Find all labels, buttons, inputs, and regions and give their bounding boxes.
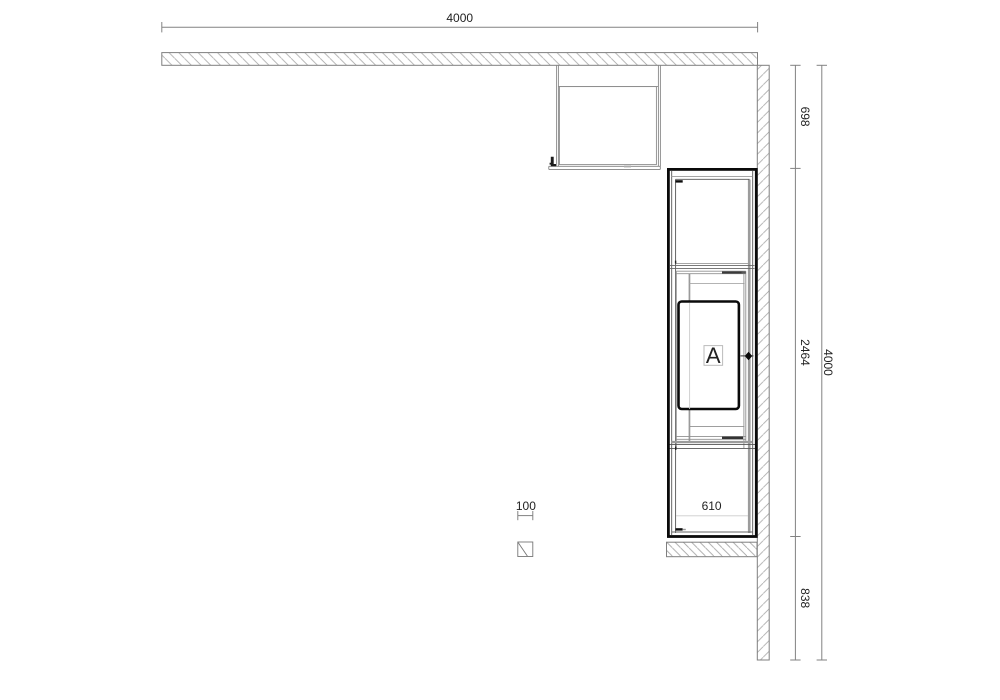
svg-text:838: 838	[798, 588, 812, 608]
svg-text:610: 610	[702, 499, 722, 513]
svg-text:4000: 4000	[821, 349, 835, 376]
svg-text:A: A	[706, 343, 721, 368]
svg-text:2464: 2464	[798, 339, 812, 366]
svg-text:100: 100	[516, 499, 536, 513]
svg-text:4000: 4000	[446, 11, 473, 25]
svg-text:698: 698	[798, 107, 812, 127]
